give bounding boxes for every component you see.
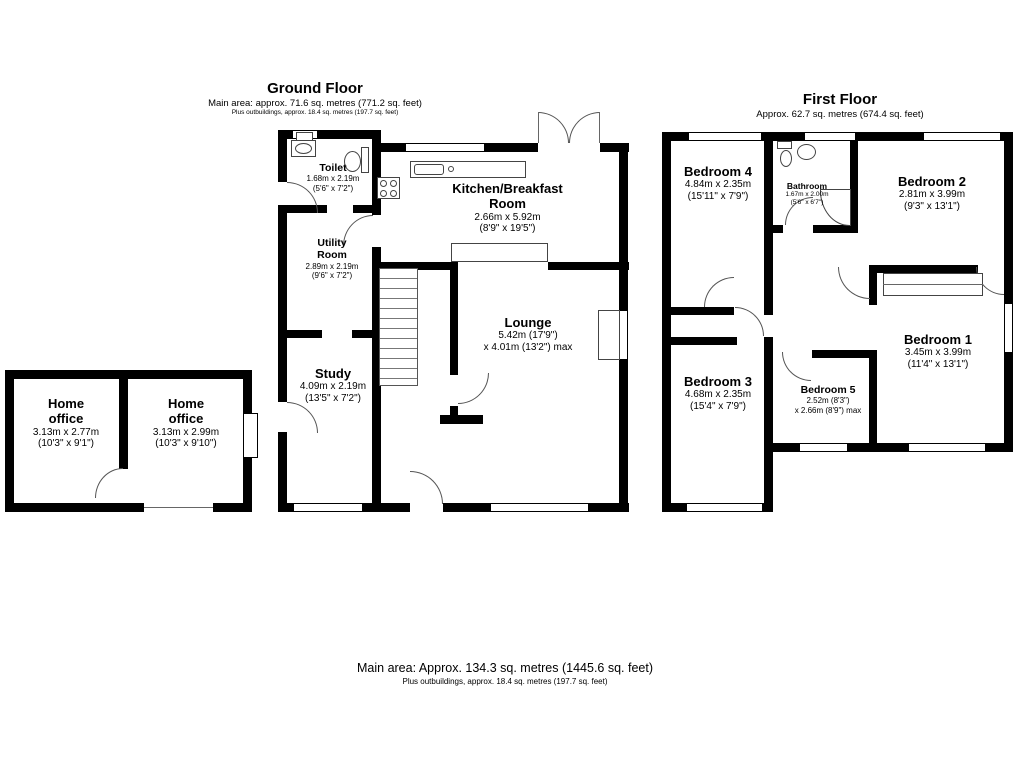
room-label-toilet: Toilet 1.68m x 2.19m (5'6" x 7'2")	[288, 162, 378, 193]
room-label-study: Study 4.09m x 2.19m (13'5" x 7'2")	[283, 366, 383, 405]
wall	[850, 132, 858, 233]
french-door-arc	[538, 112, 569, 143]
wall	[869, 265, 877, 305]
room-name: Bedroom 5	[780, 384, 876, 396]
sink-icon	[797, 144, 816, 160]
door-swing-arc	[838, 267, 870, 299]
wall	[440, 415, 483, 424]
room-dim-metric: 3.13m x 2.99m	[130, 427, 242, 439]
room-dim-imperial: (15'11" x 7'9")	[662, 191, 774, 203]
first-floor-title: First Floor	[665, 91, 1015, 108]
room-dim-metric: 5.42m (17'9")	[453, 330, 603, 342]
door-opening	[410, 503, 443, 512]
window	[490, 503, 589, 512]
wall	[764, 132, 773, 315]
footer-main-area: Main area: Approx. 134.3 sq. metres (144…	[280, 661, 730, 675]
door-swing-arc	[287, 402, 318, 433]
room-name: Bedroom 1	[868, 332, 1008, 347]
room-name: Kitchen/Breakfast Room	[438, 181, 578, 212]
first-floor-header: First Floor Approx. 62.7 sq. metres (674…	[665, 91, 1015, 120]
door-leaf	[538, 112, 539, 143]
room-label-kitchen: Kitchen/Breakfast Room 2.66m x 5.92m (8'…	[425, 181, 590, 235]
wall	[764, 225, 783, 233]
window	[405, 143, 485, 152]
room-dim-imperial: (9'3" x 13'1")	[862, 201, 1002, 213]
room-label-bedroom5: Bedroom 5 2.52m (8'3") x 2.66m (8'9") ma…	[780, 384, 876, 415]
room-dim-metric: 3.13m x 2.77m	[15, 427, 117, 439]
room-name: Lounge	[453, 315, 603, 330]
room-dim-metric: 2.66m x 5.92m	[425, 212, 590, 224]
room-dim-imperial: (10'3" x 9'1")	[15, 438, 117, 450]
door-swing-arc	[735, 307, 764, 336]
room-dim-metric: 2.52m (8'3")	[780, 396, 876, 405]
wall	[213, 503, 252, 512]
room-dim-imperial: x 2.66m (8'9") max	[780, 406, 876, 415]
staircase	[379, 268, 418, 386]
room-dim-imperial: (13'5" x 7'2")	[283, 393, 383, 405]
room-dim-metric: 4.68m x 2.35m	[662, 389, 774, 401]
room-name: Bedroom 4	[662, 164, 774, 179]
door-swing-arc	[410, 471, 443, 504]
room-dim-metric: 1.68m x 2.19m	[288, 174, 378, 183]
room-dim-imperial: (5'6" x 7'2")	[288, 184, 378, 193]
room-label-home-office-left: Home office 3.13m x 2.77m (10'3" x 9'1")	[15, 396, 117, 450]
window	[243, 413, 258, 458]
room-label-utility: Utility Room 2.89m x 2.19m (9'6" x 7'2")	[288, 237, 376, 281]
window	[293, 503, 363, 512]
wall	[278, 130, 287, 182]
wall	[869, 265, 978, 273]
door-swing-arc	[95, 468, 123, 498]
toilet-cistern-icon	[777, 141, 792, 149]
wall	[764, 337, 773, 512]
french-door-opening	[538, 143, 600, 152]
burner-icon	[390, 180, 397, 187]
room-dim-imperial: (10'3" x 9'10")	[130, 438, 242, 450]
wall	[352, 330, 381, 338]
total-area-footer: Main area: Approx. 134.3 sq. metres (144…	[280, 661, 730, 686]
door-swing-arc	[782, 352, 811, 381]
threshold-line	[144, 507, 213, 508]
kitchen-sink-icon	[414, 164, 444, 175]
first-floor-area: Approx. 62.7 sq. metres (674.4 sq. feet)	[665, 109, 1015, 120]
faucet-icon	[448, 166, 454, 172]
ground-floor-title: Ground Floor	[140, 80, 490, 97]
room-label-bedroom2: Bedroom 2 2.81m x 3.99m (9'3" x 13'1")	[862, 174, 1002, 213]
room-dim-metric: 2.81m x 3.99m	[862, 189, 1002, 201]
window	[619, 310, 628, 360]
wall	[278, 330, 322, 338]
room-dim-metric: 3.45m x 3.99m	[868, 347, 1008, 359]
room-name: Utility Room	[308, 237, 356, 262]
wall	[353, 205, 381, 213]
window	[686, 503, 763, 512]
room-dim-metric: 2.89m x 2.19m	[288, 262, 376, 271]
wall	[5, 370, 14, 512]
door-swing-arc	[458, 373, 489, 404]
wall	[662, 307, 734, 315]
room-dim-imperial: (8'9" x 19'5")	[425, 223, 590, 235]
ground-floor-header: Ground Floor Main area: approx. 71.6 sq.…	[140, 80, 490, 116]
toilet-icon	[780, 150, 792, 167]
window	[688, 132, 762, 141]
room-name: Bathroom	[768, 181, 846, 191]
room-label-lounge: Lounge 5.42m (17'9") x 4.01m (13'2") max	[453, 315, 603, 354]
room-name: Home office	[39, 396, 93, 427]
sideboard-icon	[451, 243, 548, 262]
room-label-home-office-right: Home office 3.13m x 2.99m (10'3" x 9'10"…	[130, 396, 242, 450]
room-label-bedroom3: Bedroom 3 4.68m x 2.35m (15'4" x 7'9")	[662, 374, 774, 413]
door-leaf	[599, 112, 600, 143]
room-name: Toilet	[288, 162, 378, 174]
room-dim-metric: 1.67m x 2.00m	[768, 191, 846, 199]
wall	[5, 370, 252, 379]
wardrobe-door-line	[883, 284, 983, 285]
burner-icon	[380, 190, 387, 197]
wall	[1004, 132, 1013, 452]
wall	[278, 432, 287, 512]
burner-icon	[380, 180, 387, 187]
wall	[5, 503, 144, 512]
room-dim-imperial: (15'4" x 7'9")	[662, 401, 774, 413]
room-name: Study	[283, 366, 383, 381]
room-dim-metric: 4.09m x 2.19m	[283, 381, 383, 393]
burner-icon	[390, 190, 397, 197]
floorplan-canvas: Ground Floor Main area: approx. 71.6 sq.…	[0, 0, 1024, 768]
window	[799, 443, 848, 452]
room-dim-imperial: (5'6" x 6'7")	[768, 199, 846, 207]
room-dim-imperial: (9'6" x 7'2")	[288, 271, 376, 280]
footer-outbuildings: Plus outbuildings, approx. 18.4 sq. metr…	[280, 677, 730, 686]
window	[804, 132, 856, 141]
ground-floor-area: Main area: approx. 71.6 sq. metres (771.…	[140, 98, 490, 109]
room-name: Bedroom 2	[862, 174, 1002, 189]
ground-floor-outbuildings: Plus outbuildings, approx. 18.4 sq. metr…	[140, 109, 490, 116]
french-door-arc	[569, 112, 600, 143]
room-name: Bedroom 3	[662, 374, 774, 389]
room-name: Home office	[159, 396, 213, 427]
window	[923, 132, 1001, 141]
sink-bowl-icon	[295, 143, 312, 154]
door-swing-arc	[704, 277, 734, 307]
room-label-bathroom: Bathroom 1.67m x 2.00m (5'6" x 6'7")	[768, 181, 846, 206]
room-dim-imperial: x 4.01m (13'2") max	[453, 342, 603, 354]
wall	[662, 337, 737, 345]
room-dim-imperial: (11'4" x 13'1")	[868, 359, 1008, 371]
room-dim-metric: 4.84m x 2.35m	[662, 179, 774, 191]
wall	[548, 262, 629, 270]
window	[908, 443, 986, 452]
wall	[119, 370, 128, 469]
room-label-bedroom1: Bedroom 1 3.45m x 3.99m (11'4" x 13'1")	[868, 332, 1008, 371]
room-label-bedroom4: Bedroom 4 4.84m x 2.35m (15'11" x 7'9")	[662, 164, 774, 203]
